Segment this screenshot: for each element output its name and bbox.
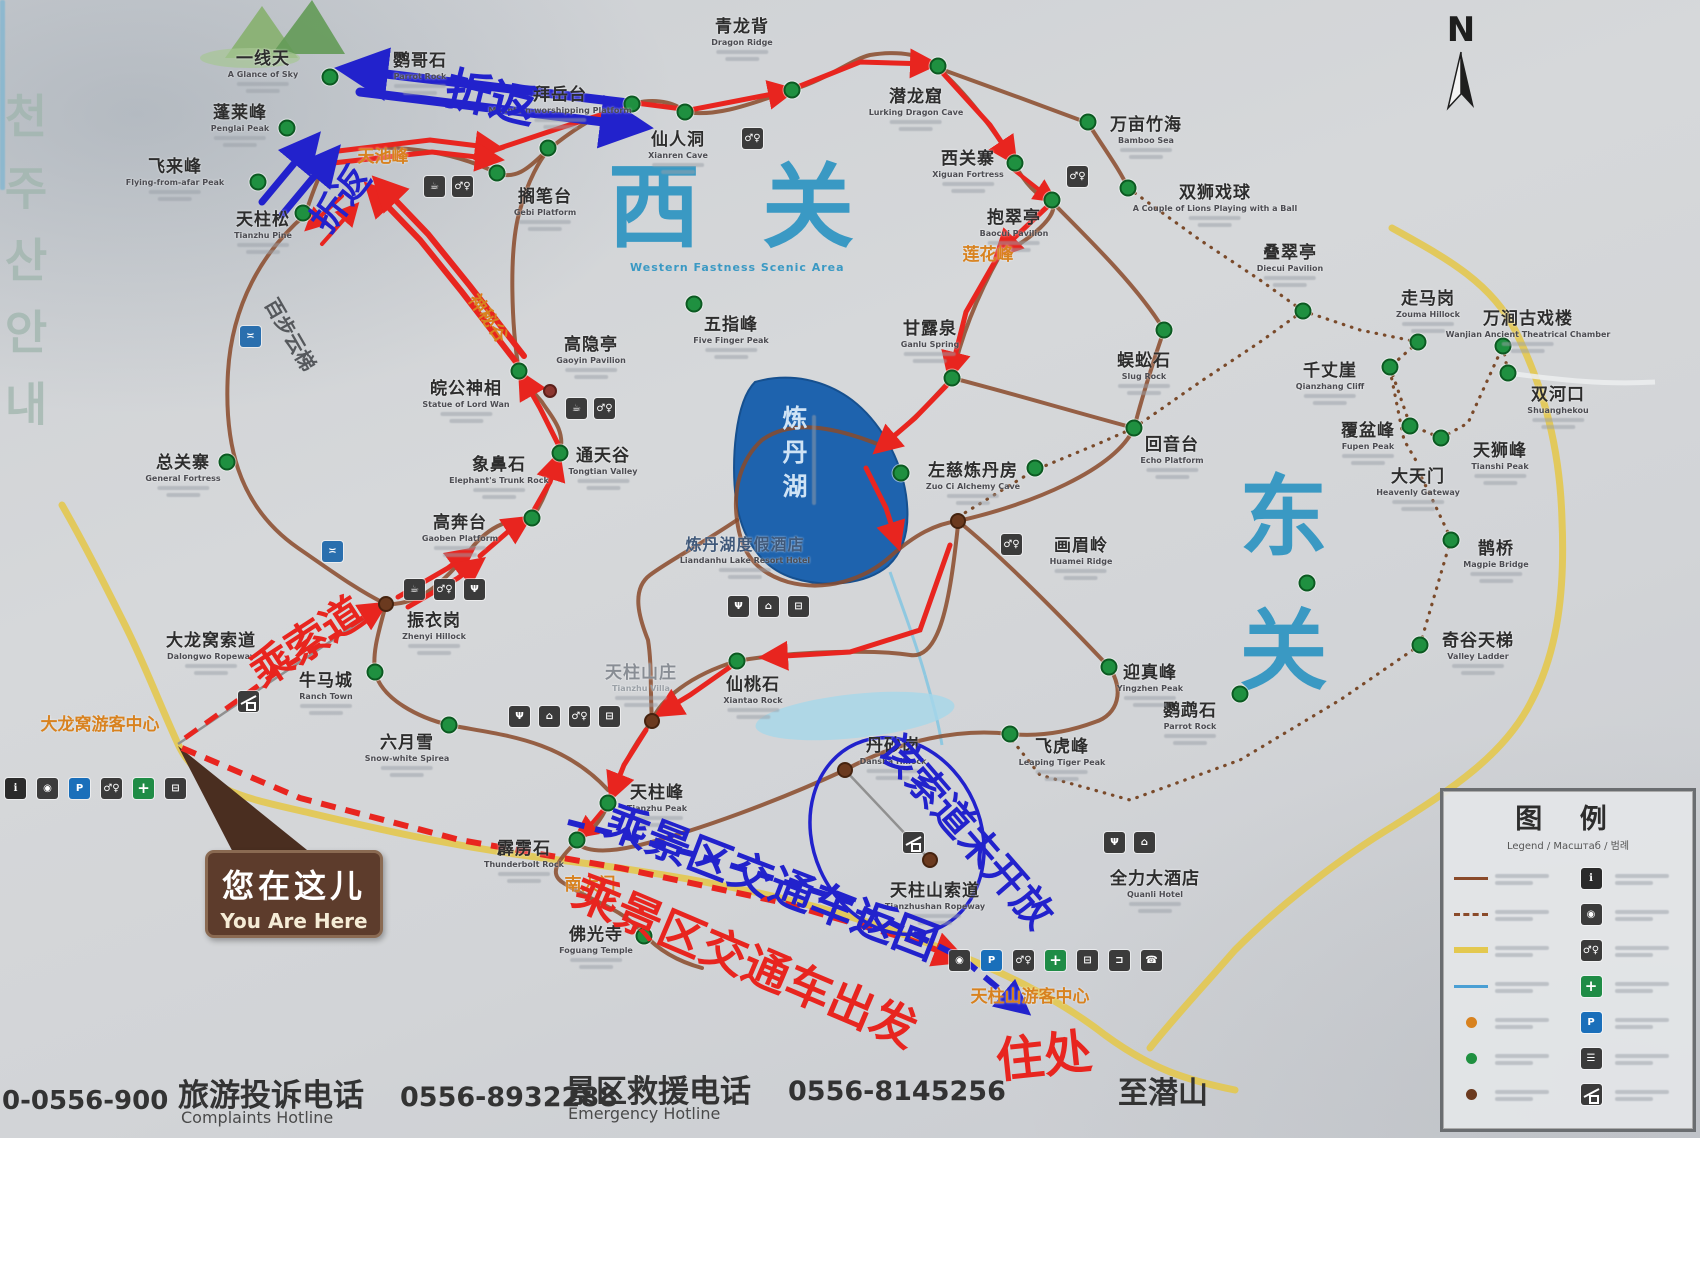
legend-label-blurred	[1609, 979, 1683, 993]
junction-dot	[922, 852, 938, 868]
blurred-sublabel	[149, 190, 201, 194]
parking-icon: P	[1581, 1012, 1602, 1033]
landmark-name-en: Tianshi Peak	[1471, 462, 1528, 471]
landmark-name-en: Fupen Peak	[1341, 442, 1395, 451]
landmark-label: 高奔台Gaoben Platform	[422, 508, 498, 557]
landmark-name-en: Gaoyin Pavilion	[556, 356, 626, 365]
landmark-name: 覆盆峰	[1341, 416, 1395, 441]
blurred-sublabel	[727, 708, 779, 712]
blurred-sublabel	[1173, 741, 1207, 745]
blurred-sublabel	[408, 644, 460, 648]
blurred-sublabel	[1045, 777, 1079, 781]
landmark-label: 五指峰Five Finger Peak	[693, 310, 768, 359]
landmark-label: 六月雪Snow-white Spirea	[365, 728, 450, 777]
legend-rows: i◉♂♀+P☰	[1453, 860, 1683, 1112]
legend-row	[1453, 1040, 1563, 1076]
blurred-sublabel	[381, 766, 433, 770]
landmark-label: 左慈炼丹房Zuo Ci Alchemy Cave	[926, 456, 1020, 505]
landmark-name: 一线天	[228, 44, 298, 69]
blurred-sublabel	[519, 220, 571, 224]
trail-road	[952, 378, 1134, 428]
landmark-dot	[1443, 532, 1460, 549]
landmark-name-en: A Couple of Lions Playing with a Ball	[1133, 204, 1298, 213]
blurred-sublabel	[158, 197, 192, 201]
legend-row: i	[1573, 860, 1683, 896]
blurred-sublabel	[443, 553, 477, 557]
blurred-sublabel	[661, 170, 695, 174]
restaurant-icon: Ψ	[728, 596, 749, 617]
landmark-name-en: Bamboo Sea	[1110, 136, 1182, 145]
landmark-name: 鹊桥	[1463, 534, 1528, 559]
landmark-label: 总关寨General Fortress	[145, 448, 220, 497]
legend-label-blurred	[1489, 871, 1563, 885]
landmark-name: 五指峰	[693, 310, 768, 335]
landmark-name-en: Tongtian Valley	[568, 467, 637, 476]
landmark-label: 振衣岗Zhenyi Hillock	[402, 606, 466, 655]
legend-subtitle: Legend / Масштаб / 범례	[1453, 837, 1683, 852]
landmark-name-en: General Fortress	[145, 474, 220, 483]
landmark-name-en: Wanjian Ancient Theatrical Chamber	[1446, 330, 1611, 339]
landmark-name: 回音台	[1140, 430, 1203, 455]
bus-icon: ⊟	[599, 706, 620, 727]
blurred-sublabel	[728, 575, 762, 579]
landmark-dot	[1156, 322, 1173, 339]
landmark-name-en: Shuanghekou	[1527, 406, 1588, 415]
landmark-name: 蓬莱峰	[211, 98, 269, 123]
partial-phone-number: 0-0556-900	[2, 1086, 168, 1116]
blurred-sublabel	[951, 189, 985, 193]
blurred-sublabel	[507, 879, 541, 883]
firstaid-icon: +	[1581, 976, 1602, 997]
blurred-sublabel	[440, 412, 492, 416]
minor-dot	[543, 384, 557, 398]
landmark-name-en: Quanli Hotel	[1110, 890, 1200, 899]
landmark-name-en: Echo Platform	[1140, 456, 1203, 465]
landmark-name-en: Flying-from-afar Peak	[126, 178, 225, 187]
blurred-sublabel	[1064, 576, 1098, 580]
legend-row	[1453, 896, 1563, 932]
blurred-sublabel	[1304, 394, 1356, 398]
blurred-sublabel	[300, 704, 352, 708]
map-photo-area: 一线天A Glance of Sky鹦哥石Parrot Rock蓬莱峰Pengl…	[0, 0, 1707, 1138]
landmark-name: 画眉岭	[1050, 531, 1113, 556]
landmark-dot	[1412, 637, 1429, 654]
photo-edge-text: 천주산안내	[0, 92, 56, 452]
landmark-name: 仙桃石	[723, 670, 782, 695]
landmark-label: 象鼻石Elephant's Trunk Rock	[449, 450, 549, 499]
landmark-name: 仙人洞	[648, 125, 708, 150]
landmark-label: 天狮峰Tianshi Peak	[1471, 436, 1528, 485]
landmark-name: 双狮戏球	[1133, 178, 1298, 203]
toilet-icon: ♂♀	[1067, 166, 1088, 187]
landmark-name-en: Magpie Bridge	[1463, 560, 1528, 569]
blurred-sublabel	[1146, 468, 1198, 472]
blurred-sublabel	[736, 715, 770, 719]
landmark-dot	[729, 653, 746, 670]
blurred-sublabel	[586, 486, 620, 490]
landmark-name: 抱翠亭	[980, 203, 1049, 228]
blurred-sublabel	[1129, 902, 1181, 906]
landmark-dot	[367, 664, 384, 681]
landmark-name: 通天谷	[568, 441, 637, 466]
blurred-sublabel	[1461, 671, 1495, 675]
legend-label-blurred	[1489, 1015, 1563, 1029]
toilet-icon: ♂♀	[1013, 950, 1034, 971]
blurred-sublabel	[1036, 770, 1088, 774]
landmark-name-en: Snow-white Spirea	[365, 754, 450, 763]
landmark-name-en: Qianzhang Cliff	[1296, 382, 1364, 391]
landmark-label: 炼丹湖度假酒店Liandanhu Lake Resort Hotel	[680, 531, 810, 579]
landmark-name: 双河口	[1527, 380, 1588, 405]
legend-row	[1453, 860, 1563, 896]
landmark-dot	[511, 363, 528, 380]
landmark-name: 飞来峰	[126, 152, 225, 177]
landmark-dot	[1433, 430, 1450, 447]
landmark-dot	[250, 174, 267, 191]
cableway-icon	[1581, 1084, 1602, 1105]
camera-icon: ◉	[1581, 904, 1602, 925]
blurred-sublabel	[1133, 703, 1167, 707]
landmark-label: 皖公神相Statue of Lord Wan	[422, 374, 509, 423]
landmark-label: 双河口Shuanghekou	[1527, 380, 1588, 429]
legend-row	[1453, 1004, 1563, 1040]
landmark-label: 千丈崖Qianzhang Cliff	[1296, 356, 1364, 405]
toilet-icon: ♂♀	[742, 128, 763, 149]
landmark-name: 青龙背	[711, 12, 772, 37]
landmark-label: 仙人洞Xianren Cave	[648, 125, 708, 174]
legend-label-blurred	[1609, 1087, 1683, 1101]
legend-row: ☰	[1573, 1040, 1683, 1076]
landmark-label: 飞虎峰Leaping Tiger Peak	[1019, 732, 1106, 781]
blurred-sublabel	[570, 958, 622, 962]
landmark-name: 奇谷天梯	[1442, 626, 1514, 651]
landmark-name-en: Baocui Pavilion	[980, 229, 1049, 238]
bridge-icon: ≍	[322, 541, 343, 562]
orange-place-label: 天池峰	[358, 142, 409, 167]
blurred-sublabel	[1470, 572, 1522, 576]
landmark-dot	[784, 82, 801, 99]
complaints-hotline-en: Complaints Hotline	[181, 1108, 333, 1127]
legend-label-blurred	[1609, 943, 1683, 957]
landmark-label: 一线天A Glance of Sky	[228, 44, 298, 93]
blurred-sublabel	[246, 89, 280, 93]
landmark-name-en: Five Finger Peak	[693, 336, 768, 345]
region-west-label: 西关	[608, 162, 916, 254]
blurred-sublabel	[904, 352, 956, 356]
emergency-hotline-number: 0556-8145256	[788, 1076, 1006, 1107]
landmark-name: 鹦哥石	[393, 46, 447, 71]
landmark-name-en: Lurking Dragon Cave	[869, 108, 964, 117]
landmark-name-en: Parrot Rock	[1163, 722, 1217, 731]
legend-label-blurred	[1489, 979, 1563, 993]
hotel-icon: ⌂	[539, 706, 560, 727]
landmark-name: 潜龙窟	[869, 82, 964, 107]
blurred-sublabel	[237, 243, 289, 247]
shop-icon: ☕	[404, 579, 425, 600]
blurred-sublabel	[714, 355, 748, 359]
landmark-dot	[944, 370, 961, 387]
landmark-name-en: Xiguan Fortress	[932, 170, 1004, 179]
trail-dot	[1027, 460, 1044, 477]
landmark-label: 西关寨Xiguan Fortress	[932, 144, 1004, 193]
parking-icon: P	[69, 778, 90, 799]
restaurant-icon: Ψ	[509, 706, 530, 727]
landmark-name-en: Slug Rock	[1117, 372, 1171, 381]
landmark-dot	[322, 69, 339, 86]
landmark-name-en: Liandanhu Lake Resort Hotel	[680, 556, 810, 565]
blurred-sublabel	[166, 493, 200, 497]
legend-label-blurred	[1489, 1087, 1563, 1101]
blurred-sublabel	[482, 495, 516, 499]
landmark-label: 天柱山庄Tianzhu Villa	[605, 658, 677, 707]
info-icon: i	[1581, 868, 1602, 889]
landmark-name: 千丈崖	[1296, 356, 1364, 381]
blurred-sublabel	[1155, 475, 1189, 479]
landmark-label: 甘露泉Ganlu Spring	[901, 314, 959, 363]
landmark-name: 高奔台	[422, 508, 498, 533]
blurred-sublabel	[214, 136, 266, 140]
restaurant-icon: Ψ	[1104, 832, 1125, 853]
landmark-label: 仙桃石Xiantao Rock	[723, 670, 782, 719]
blurred-sublabel	[1401, 507, 1435, 511]
landmark-label: 万亩竹海Bamboo Sea	[1110, 110, 1182, 159]
blurred-sublabel	[1313, 401, 1347, 405]
landmark-name-en: Elephant's Trunk Rock	[449, 476, 549, 485]
landmark-name: 万亩竹海	[1110, 110, 1182, 135]
page-margin-right	[1700, 0, 1707, 1280]
legend-swatch-dot-orange	[1453, 1017, 1489, 1028]
landmark-label: 搁笔台Gebi Platform	[514, 182, 576, 231]
landmark-name-en: Leaping Tiger Peak	[1019, 758, 1106, 767]
toilet-icon: ♂♀	[1581, 940, 1602, 961]
blurred-sublabel	[1273, 283, 1307, 287]
blurred-sublabel	[1483, 481, 1517, 485]
landmark-name: 天柱松	[234, 205, 292, 230]
landmark-name: 全力大酒店	[1110, 864, 1200, 889]
blurred-sublabel	[1118, 384, 1170, 388]
landmark-name-en: Tianzhu Pine	[234, 231, 292, 240]
landmark-dot	[1500, 365, 1517, 382]
landmark-name: 皖公神相	[422, 374, 509, 399]
landmark-name: 振衣岗	[402, 606, 466, 631]
landmark-name-en: A Glance of Sky	[228, 70, 298, 79]
firstaid-icon: +	[1045, 950, 1066, 971]
phone-icon: ☎	[1141, 950, 1162, 971]
hotel-icon: ⌂	[758, 596, 779, 617]
blurred-sublabel	[899, 127, 933, 131]
landmark-label: 霹雳石Thunderbolt Rock	[484, 834, 564, 883]
blurred-sublabel	[716, 50, 768, 54]
landmark-dot	[569, 832, 586, 849]
landmark-name: 六月雪	[365, 728, 450, 753]
landmark-name: 左慈炼丹房	[926, 456, 1020, 481]
landmark-name: 搁笔台	[514, 182, 576, 207]
landmark-name-en: Xianren Cave	[648, 151, 708, 160]
bus-icon: ⊟	[788, 596, 809, 617]
blurred-sublabel	[725, 57, 759, 61]
blurred-sublabel	[624, 703, 658, 707]
legend-swatch-line-brown	[1453, 877, 1489, 880]
blurred-sublabel	[1127, 391, 1161, 395]
landmark-name: 天柱山庄	[605, 658, 677, 683]
trail-dot	[1299, 575, 1316, 592]
legend-label-blurred	[1609, 1051, 1683, 1065]
landmark-dot	[1101, 659, 1118, 676]
landmark-dot	[1410, 334, 1427, 351]
landmark-label: 飞来峰Flying-from-afar Peak	[126, 152, 225, 201]
blurred-sublabel	[1411, 329, 1445, 333]
legend-swatch-line-blue	[1453, 985, 1489, 988]
landmark-label: 回音台Echo Platform	[1140, 430, 1203, 479]
landmark-label: 大天门Heavenly Gateway	[1376, 462, 1460, 511]
landmark-dot	[677, 104, 694, 121]
landmark-name: 飞虎峰	[1019, 732, 1106, 757]
bus-icon: ⊟	[1077, 950, 1098, 971]
landmark-dot	[1007, 155, 1024, 172]
compass-n-label: N	[1436, 10, 1486, 50]
landmark-name-en: Yingzhen Peak	[1117, 684, 1183, 693]
landmark-label: 蜈蚣石Slug Rock	[1117, 346, 1171, 395]
blurred-sublabel	[223, 143, 257, 147]
landmark-name-en: Xiantao Rock	[723, 696, 782, 705]
landmark-name: 炼丹湖度假酒店	[680, 531, 810, 555]
taxi-icon: ⊐	[1109, 950, 1130, 971]
landmark-name-en: Ranch Town	[299, 692, 353, 701]
blurred-sublabel	[913, 359, 947, 363]
blurred-sublabel	[890, 120, 942, 124]
blurred-sublabel	[309, 711, 343, 715]
destination-qianshan: 至潜山	[1118, 1068, 1208, 1112]
landmark-name-en: Tianzhu Villa	[605, 684, 677, 693]
blurred-sublabel	[1511, 349, 1545, 353]
landmark-dot	[524, 510, 541, 527]
landmark-name: 高隐亭	[556, 330, 626, 355]
shop-icon: ☕	[566, 398, 587, 419]
legend-swatch-dot-green	[1453, 1053, 1489, 1064]
blurred-sublabel	[1198, 223, 1232, 227]
camera-icon: ◉	[37, 778, 58, 799]
toilet-icon: ♂♀	[1001, 534, 1022, 555]
legend-row: ◉	[1573, 896, 1683, 932]
landmark-name: 万涧古戏楼	[1446, 304, 1611, 329]
legend-row: ♂♀	[1573, 932, 1683, 968]
blurred-sublabel	[498, 872, 550, 876]
blurred-sublabel	[1164, 734, 1216, 738]
legend-swatch-line-yellow	[1453, 947, 1489, 953]
junction-dot	[950, 513, 966, 529]
blurred-sublabel	[1189, 216, 1241, 220]
landmark-label: 通天谷Tongtian Valley	[568, 441, 637, 490]
landmark-name-en: Gebi Platform	[514, 208, 576, 217]
blurred-sublabel	[719, 568, 771, 572]
landmark-label: 鹦哥石Parrot Rock	[393, 46, 447, 95]
landmark-label: 奇谷天梯Valley Ladder	[1442, 626, 1514, 675]
legend-row	[1453, 1076, 1563, 1112]
blurred-sublabel	[1129, 155, 1163, 159]
blurred-sublabel	[246, 250, 280, 254]
landmark-name-en: Ganlu Spring	[901, 340, 959, 349]
you-are-here-pointer	[178, 746, 312, 862]
landmark-name: 象鼻石	[449, 450, 549, 475]
blurred-sublabel	[1342, 454, 1394, 458]
blurred-sublabel	[543, 125, 577, 129]
junction-dot	[644, 713, 660, 729]
landmark-label: 潜龙窟Lurking Dragon Cave	[869, 82, 964, 131]
landmark-dot	[219, 454, 236, 471]
camera-icon: ◉	[949, 950, 970, 971]
landmark-dot	[552, 445, 569, 462]
blurred-sublabel	[528, 227, 562, 231]
blurred-sublabel	[1479, 579, 1513, 583]
landmark-name-en: Zhenyi Hillock	[402, 632, 466, 641]
landmark-label: 覆盆峰Fupen Peak	[1341, 416, 1395, 465]
parking-icon: P	[981, 950, 1002, 971]
landmark-label: 蓬莱峰Penglai Peak	[211, 98, 269, 147]
emergency-hotline-en: Emergency Hotline	[568, 1104, 720, 1123]
landmark-name: 甘露泉	[901, 314, 959, 339]
landmark-dot	[1382, 359, 1399, 376]
landmark-dot	[1402, 418, 1419, 435]
legend-label-blurred	[1489, 907, 1563, 921]
landmark-name: 天狮峰	[1471, 436, 1528, 461]
bridge-icon: ≍	[240, 326, 261, 347]
blurred-sublabel	[1452, 664, 1504, 668]
blurred-sublabel	[574, 375, 608, 379]
landmark-dot	[279, 120, 296, 137]
landmark-dot	[1295, 303, 1312, 320]
landmark-name: 西关寨	[932, 144, 1004, 169]
blurred-sublabel	[579, 965, 613, 969]
legend-row: P	[1573, 1004, 1683, 1040]
landmark-name-en: Huamei Ridge	[1050, 557, 1113, 566]
blurred-sublabel	[942, 182, 994, 186]
landmark-name-en: Heavenly Gateway	[1376, 488, 1460, 497]
landmark-name-en: Thunderbolt Rock	[484, 860, 564, 869]
landmark-name-en: Foguang Temple	[559, 946, 633, 955]
junction-dot	[837, 762, 853, 778]
orange-place-label: 天柱山游客中心	[971, 982, 1090, 1007]
toilet-icon: ♂♀	[434, 579, 455, 600]
cableway-icon	[903, 832, 924, 853]
trail-dot	[540, 140, 557, 157]
landmark-name-en: Diecui Pavilion	[1257, 264, 1323, 273]
blurred-sublabel	[577, 479, 629, 483]
landmark-label: 鹊桥Magpie Bridge	[1463, 534, 1528, 583]
landmark-label: 迎真峰Yingzhen Peak	[1117, 658, 1183, 707]
blurred-sublabel	[157, 486, 209, 490]
legend-label-blurred	[1609, 871, 1683, 885]
info-icon: i	[5, 778, 26, 799]
toilet-icon: ♂♀	[452, 176, 473, 197]
landmark-dot	[930, 58, 947, 75]
landmark-name: 叠翠亭	[1257, 238, 1323, 263]
landmark-label: 青龙背Dragon Ridge	[711, 12, 772, 61]
landmark-name: 蜈蚣石	[1117, 346, 1171, 371]
blurred-sublabel	[956, 501, 990, 505]
landmark-dot	[489, 165, 506, 182]
blurred-sublabel	[1474, 474, 1526, 478]
blurred-sublabel	[565, 368, 617, 372]
lake-name: 炼丹湖	[775, 405, 811, 507]
legend-row	[1573, 1076, 1683, 1112]
landmark-name: 大天门	[1376, 462, 1460, 487]
landmark-name-en: Zuo Ci Alchemy Cave	[926, 482, 1020, 491]
blurred-sublabel	[705, 348, 757, 352]
blurred-sublabel	[1392, 500, 1444, 504]
landmark-label: 万涧古戏楼Wanjian Ancient Theatrical Chamber	[1446, 304, 1611, 353]
bus-icon: ⊟	[165, 778, 186, 799]
landmark-name-en: Statue of Lord Wan	[422, 400, 509, 409]
